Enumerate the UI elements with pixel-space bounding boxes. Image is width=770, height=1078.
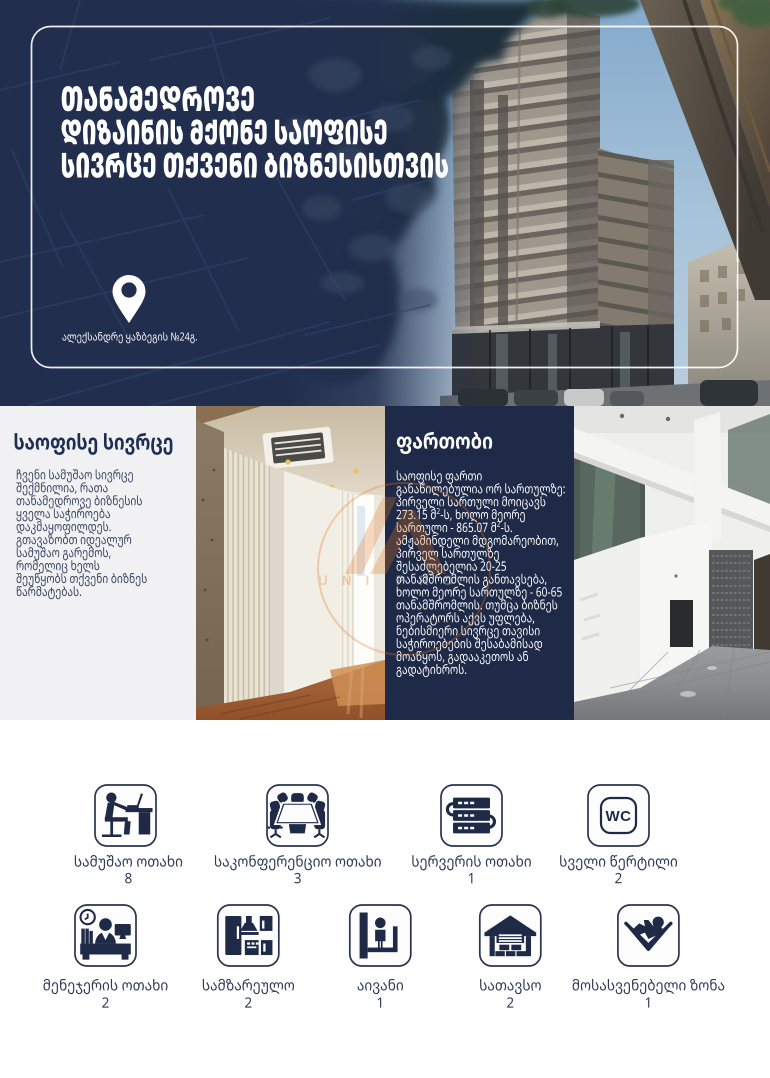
svg-text:PRO: PRO xyxy=(396,573,467,588)
svg-text:UNI: UNI xyxy=(318,573,383,588)
svg-text:WC: WC xyxy=(606,808,632,825)
